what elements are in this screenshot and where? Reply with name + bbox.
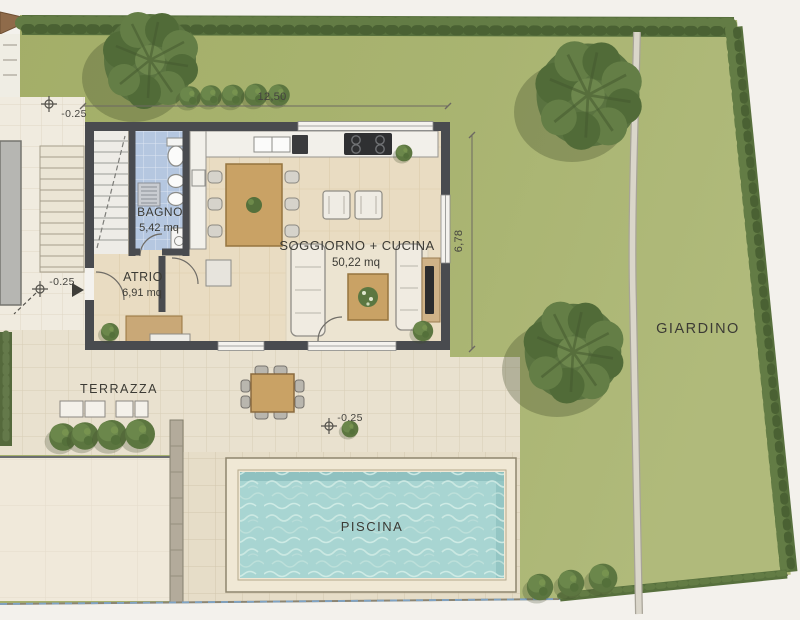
sun-loungers [60, 401, 148, 417]
dimension-height-label: 6,78 [453, 230, 465, 253]
neighbor-fence [0, 34, 20, 97]
tv-icon [425, 266, 434, 314]
garden-label: GIARDINO [656, 321, 740, 337]
toilet-icon [167, 138, 185, 166]
tv-console [422, 258, 440, 322]
bathroom-area: 5,42 mq [139, 222, 179, 234]
table-plant-icon [246, 197, 262, 213]
atrio-sideboard [126, 316, 190, 343]
oven-icon [292, 135, 308, 154]
neighbor-slab [0, 141, 21, 305]
driveway [0, 457, 170, 601]
shower-icon [138, 183, 160, 206]
level-marker-top: -0.25 [61, 108, 86, 120]
entrance-opening [85, 268, 94, 300]
dining-table [208, 164, 299, 246]
floor-plan-canvas: BAGNO 5,42 mq ATRIO 6,91 mq SOGGIORNO + … [0, 0, 800, 620]
level-marker-entrance: -0.25 [49, 276, 74, 288]
retaining-wall [170, 420, 183, 608]
cooktop-icon [344, 133, 392, 155]
pool-label: PISCINA [341, 519, 404, 534]
living-label: SOGGIORNO + CUCINA [279, 238, 434, 253]
outdoor-dining-set [241, 366, 304, 419]
atrio-label: ATRIO [123, 270, 163, 284]
cabinet-icon [206, 260, 231, 286]
dimension-width-label: 12,50 [257, 91, 286, 103]
coffee-table [348, 274, 388, 320]
atrio-area: 6,91 mq [122, 287, 162, 299]
exterior-stairs [40, 146, 84, 272]
site-plan: BAGNO 5,42 mq ATRIO 6,91 mq SOGGIORNO + … [0, 0, 800, 620]
terrace-label: TERRAZZA [80, 382, 158, 396]
bathroom-label: BAGNO [137, 205, 183, 219]
level-marker-patio: -0.25 [337, 412, 362, 424]
interior-staircase [94, 130, 128, 254]
living-area: 50,22 mq [332, 257, 380, 269]
